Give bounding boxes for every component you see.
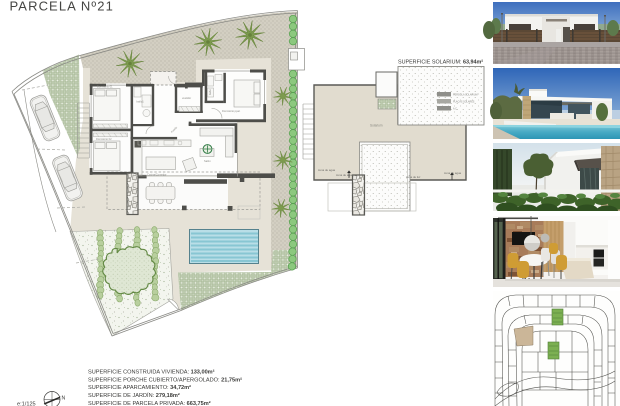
svg-text:SUPERFICIE DE JARDÍN: 279,18m²: SUPERFICIE DE JARDÍN: 279,18m² — [88, 392, 180, 399]
svg-text:Solarium: Solarium — [370, 124, 383, 128]
svg-text:toma de agua: toma de agua — [318, 168, 336, 172]
svg-text:SUPERFICIE CONSTRUIDA VIVIENDA: SUPERFICIE CONSTRUIDA VIVIENDA: 133,00m² — [88, 369, 215, 376]
svg-text:N: N — [62, 396, 66, 402]
svg-text:Salón: Salón — [204, 159, 211, 163]
svg-text:Dormitorio ppal.: Dormitorio ppal. — [222, 109, 241, 113]
svg-text:PARCELA Nº21: PARCELA Nº21 — [10, 0, 114, 14]
svg-text:e:1/125: e:1/125 — [17, 402, 36, 406]
svg-text:SUPERFICIE DE PARCELA PRIVADA:: SUPERFICIE DE PARCELA PRIVADA: 663,75m² — [88, 400, 211, 406]
svg-text:toma de luz: toma de luz — [406, 175, 421, 179]
svg-text:toma de agua: toma de agua — [336, 173, 354, 177]
svg-text:PLACAS SOLARES: PLACAS SOLARES — [453, 101, 475, 104]
svg-text:SUPERFICIE PORCHE CUBIERTO/APE: SUPERFICIE PORCHE CUBIERTO/APERGOLADO: 2… — [88, 376, 242, 383]
svg-text:vestidor: vestidor — [182, 96, 191, 100]
svg-text:A.C.: A.C. — [453, 108, 458, 111]
svg-text:Dormitorio 01: Dormitorio 01 — [97, 85, 113, 89]
svg-text:baño: baño — [208, 89, 212, 95]
svg-text:SUPERFICIE SOLARIUM: 63,94m²: SUPERFICIE SOLARIUM: 63,94m² — [398, 60, 483, 66]
svg-text:baño1: baño1 — [137, 100, 145, 104]
svg-text:Cocina/Comedor: Cocina/Comedor — [147, 173, 167, 177]
svg-text:Dormitorio 02: Dormitorio 02 — [96, 137, 112, 141]
svg-text:PERGOLA SOLARIUM: PERGOLA SOLARIUM — [453, 94, 478, 97]
svg-text:SUPERFICIE APARCAMIENTO: 34,72: SUPERFICIE APARCAMIENTO: 34,72m² — [88, 384, 191, 391]
